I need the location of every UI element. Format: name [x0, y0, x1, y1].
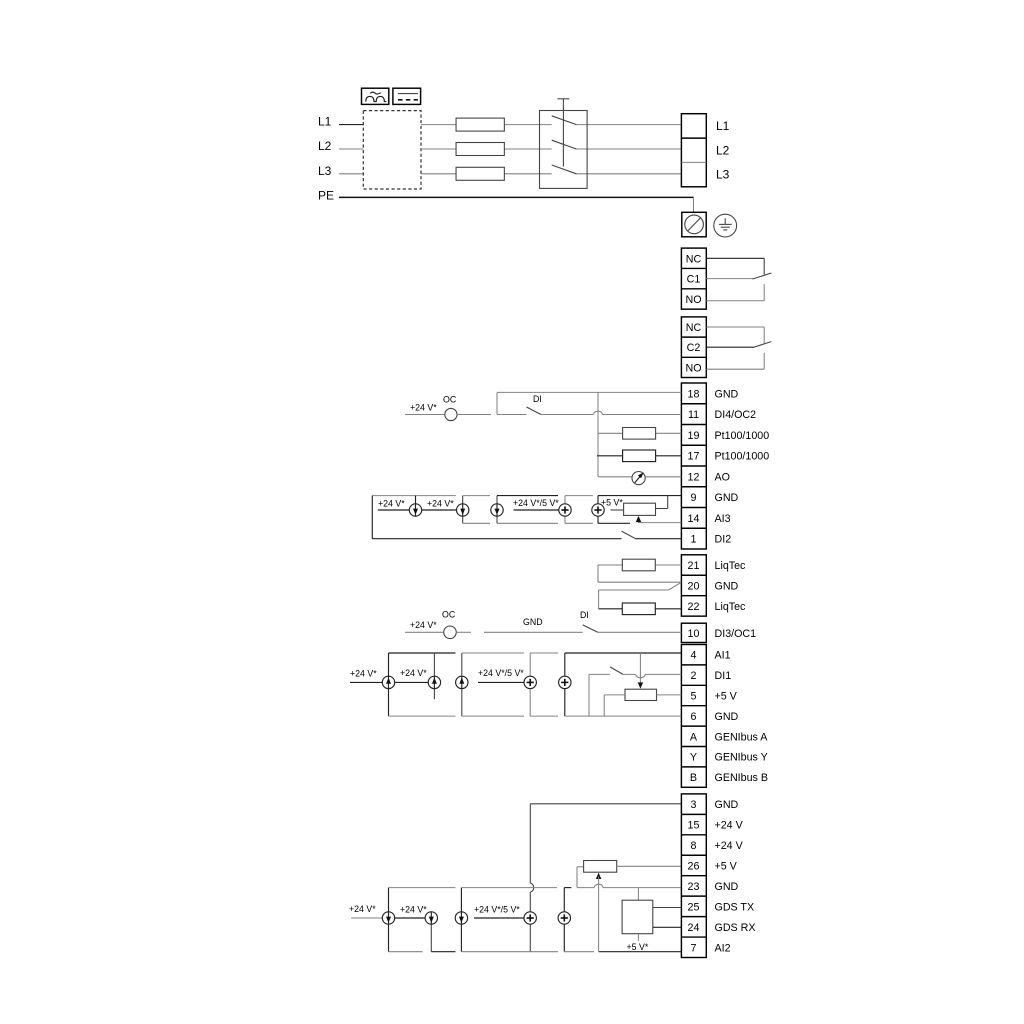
svg-text:+24 V*: +24 V* [350, 669, 377, 679]
svg-text:GND: GND [715, 388, 739, 400]
svg-text:+24 V: +24 V [715, 840, 744, 852]
svg-text:Pt100/1000: Pt100/1000 [715, 451, 770, 463]
svg-text:12: 12 [688, 471, 700, 483]
svg-text:LiqTec: LiqTec [715, 560, 747, 572]
svg-text:AI3: AI3 [715, 513, 731, 525]
svg-text:GND: GND [715, 711, 739, 723]
svg-text:GND: GND [715, 799, 739, 811]
svg-text:+24 V*/5 V*: +24 V*/5 V* [474, 904, 520, 914]
svg-text:C2: C2 [687, 342, 701, 354]
svg-text:5: 5 [691, 691, 697, 703]
svg-text:GND: GND [523, 617, 543, 627]
svg-text:+24 V*: +24 V* [378, 499, 405, 509]
svg-text:DI2: DI2 [715, 534, 732, 546]
svg-text:+24 V*/5 V*: +24 V*/5 V* [513, 498, 559, 508]
svg-text:DI3/OC1: DI3/OC1 [715, 628, 757, 640]
svg-text:15: 15 [688, 820, 700, 832]
svg-text:GDS TX: GDS TX [715, 901, 755, 913]
svg-text:7: 7 [691, 942, 697, 954]
svg-text:DI4/OC2: DI4/OC2 [715, 409, 757, 421]
svg-text:NO: NO [685, 294, 701, 306]
svg-text:OC: OC [442, 610, 456, 620]
svg-text:PE: PE [318, 189, 334, 203]
svg-text:3: 3 [691, 799, 697, 811]
svg-text:C1: C1 [687, 274, 701, 286]
svg-text:+24 V: +24 V [715, 820, 744, 832]
svg-text:4: 4 [691, 650, 697, 662]
svg-text:L1: L1 [716, 119, 730, 133]
svg-text:+24 V*: +24 V* [410, 620, 437, 630]
svg-text:GENIbus A: GENIbus A [715, 731, 769, 743]
svg-text:L3: L3 [318, 164, 332, 178]
svg-text:+24 V*: +24 V* [410, 403, 437, 413]
svg-text:20: 20 [688, 580, 700, 592]
svg-text:GND: GND [715, 492, 739, 504]
svg-text:GND: GND [715, 881, 739, 893]
svg-text:A: A [690, 731, 698, 743]
svg-text:17: 17 [688, 451, 700, 463]
svg-text:+5 V: +5 V [715, 860, 738, 872]
svg-text:23: 23 [688, 881, 700, 893]
svg-text:9: 9 [691, 492, 697, 504]
svg-text:2: 2 [691, 670, 697, 682]
svg-text:LiqTec: LiqTec [715, 601, 747, 613]
svg-text:NC: NC [686, 322, 702, 334]
svg-text:+5 V*: +5 V* [601, 498, 623, 508]
svg-text:6: 6 [691, 711, 697, 723]
svg-text:1: 1 [691, 534, 697, 546]
svg-text:L2: L2 [318, 139, 332, 153]
svg-text:22: 22 [688, 601, 700, 613]
svg-text:26: 26 [688, 860, 700, 872]
svg-text:14: 14 [688, 513, 700, 525]
svg-text:GENIbus Y: GENIbus Y [715, 752, 768, 764]
svg-text:+24 V*: +24 V* [427, 499, 454, 509]
svg-text:GENIbus B: GENIbus B [715, 772, 768, 784]
svg-text:DI: DI [533, 394, 542, 404]
svg-text:24: 24 [688, 922, 700, 934]
svg-text:L2: L2 [716, 144, 730, 158]
svg-text:AI1: AI1 [715, 650, 731, 662]
svg-text:AI2: AI2 [715, 942, 731, 954]
svg-text:OC: OC [443, 395, 457, 405]
svg-text:10: 10 [688, 628, 700, 640]
svg-text:+24 V*/5 V*: +24 V*/5 V* [478, 668, 524, 678]
svg-text:AO: AO [715, 471, 730, 483]
svg-text:B: B [690, 772, 697, 784]
svg-text:DI: DI [580, 610, 589, 620]
svg-text:+5 V*: +5 V* [627, 942, 649, 952]
svg-text:NO: NO [685, 362, 701, 374]
svg-text:Pt100/1000: Pt100/1000 [715, 430, 770, 442]
svg-text:19: 19 [688, 430, 700, 442]
svg-text:25: 25 [688, 901, 700, 913]
svg-text:GDS RX: GDS RX [715, 922, 756, 934]
svg-text:+5 V: +5 V [715, 691, 738, 703]
svg-text:L1: L1 [318, 115, 332, 129]
svg-text:GND: GND [715, 580, 739, 592]
svg-text:DI1: DI1 [715, 670, 732, 682]
svg-text:+24 V*: +24 V* [400, 668, 427, 678]
svg-text:21: 21 [688, 560, 700, 572]
svg-text:+24 V*: +24 V* [400, 905, 427, 915]
svg-text:18: 18 [688, 388, 700, 400]
svg-text:Y: Y [690, 752, 697, 764]
svg-text:NC: NC [686, 253, 702, 265]
svg-text:L3: L3 [716, 168, 730, 182]
svg-text:+24 V*: +24 V* [349, 904, 376, 914]
svg-text:11: 11 [688, 409, 699, 421]
svg-text:8: 8 [691, 840, 697, 852]
